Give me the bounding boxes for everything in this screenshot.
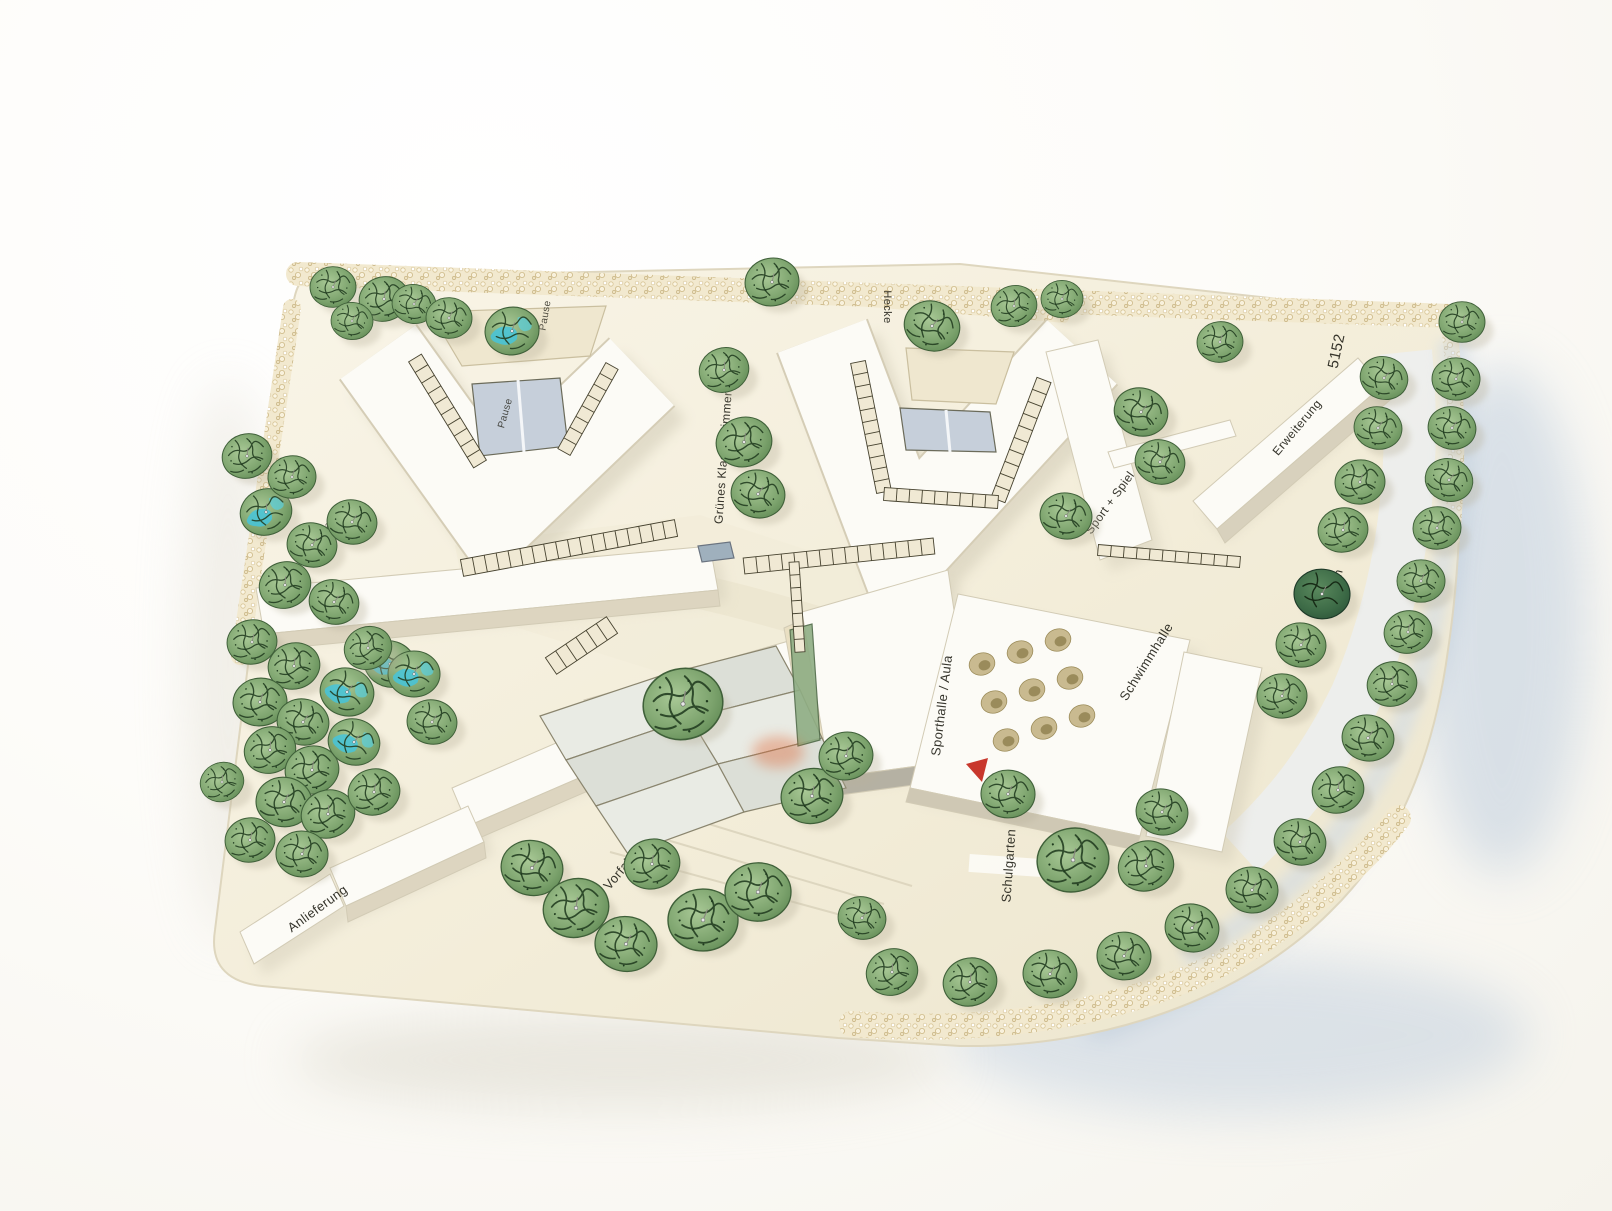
tree bbox=[1439, 302, 1485, 343]
tree bbox=[1432, 357, 1481, 400]
tree bbox=[1397, 560, 1445, 602]
tree bbox=[1041, 280, 1084, 318]
label-hecke: Hecke bbox=[881, 290, 893, 323]
courtyard-east-terraces bbox=[906, 348, 1014, 404]
site-model-photo: Hecke 5152 Erweiterung Sport + Spiel Par… bbox=[0, 0, 1612, 1211]
orange-paint-mark bbox=[752, 736, 804, 768]
model-photo-stage: Hecke 5152 Erweiterung Sport + Spiel Par… bbox=[0, 0, 1612, 1211]
link-bridge-glass bbox=[698, 542, 734, 562]
